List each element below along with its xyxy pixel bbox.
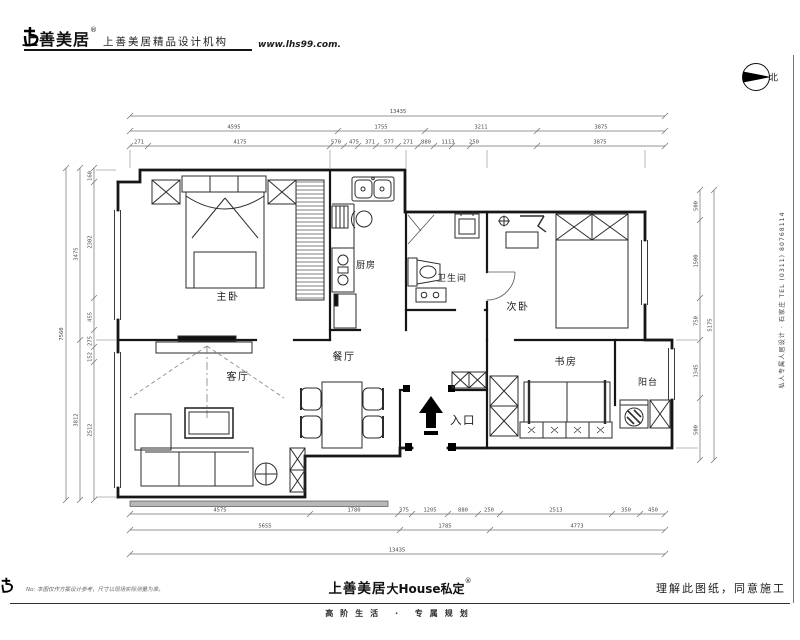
entry-arrow-icon: [419, 396, 443, 428]
footer-note: No: 本图仅作方案设计参考，尺寸以现场实际测量为准。: [26, 585, 164, 593]
room-label-bath: 卫生间: [437, 272, 467, 284]
room-label-dining: 餐厅: [333, 350, 356, 363]
dim-left: [63, 165, 116, 503]
svg-text:13435: 13435: [389, 548, 406, 554]
svg-text:3875: 3875: [594, 125, 607, 131]
room-label-kitchen: 厨房: [356, 259, 376, 271]
svg-text:3475: 3475: [74, 247, 80, 260]
svg-text:250: 250: [469, 140, 479, 146]
svg-text:5175: 5175: [708, 318, 714, 331]
svg-text:4773: 4773: [570, 524, 583, 530]
svg-text:880: 880: [421, 140, 431, 146]
balcony-fixtures: [620, 400, 670, 428]
titleblock-rules: [10, 55, 794, 604]
svg-text:4595: 4595: [227, 125, 240, 131]
svg-text:455: 455: [88, 312, 94, 322]
footer-tagline: 高阶生活 · 专属规划: [0, 608, 800, 619]
svg-text:3875: 3875: [593, 140, 606, 146]
svg-text:271: 271: [403, 140, 413, 146]
svg-text:500: 500: [694, 201, 700, 211]
svg-text:5655: 5655: [258, 524, 271, 530]
dim-bottom-labels: 4575 1780 375 1205 880 250 2513 350 450 …: [213, 508, 658, 554]
dim-top-labels: 13435 4595 1755 3211 3875 271 4175 570 4…: [134, 109, 608, 146]
north-compass-icon: 北: [743, 64, 779, 91]
svg-text:160: 160: [88, 171, 94, 181]
svg-text:1205: 1205: [423, 508, 436, 514]
header: 上善美居® 上善美居精品设计机构: [22, 26, 228, 50]
kitchen-fixtures: [332, 177, 394, 328]
floorplan-canvas: 北 13435 4595 1755 3211 3875 271 4175 570…: [0, 0, 800, 640]
svg-text:1780: 1780: [347, 508, 360, 514]
svg-text:1755: 1755: [374, 125, 387, 131]
svg-text:2512: 2512: [88, 423, 94, 436]
bathroom-fixtures: [408, 211, 479, 302]
header-rule: [24, 49, 252, 51]
website-url: www.lhs99.com.: [258, 40, 341, 50]
door-swings: [408, 215, 515, 300]
svg-text:577: 577: [384, 140, 394, 146]
svg-text:271: 271: [134, 140, 144, 146]
study-furniture: [490, 376, 612, 438]
svg-text:880: 880: [458, 508, 468, 514]
svg-text:275: 275: [88, 336, 94, 346]
room-label-living: 客厅: [227, 370, 250, 383]
footer-logo-icon: [0, 577, 15, 594]
svg-text:2513: 2513: [549, 508, 562, 514]
footer-reg-mark: ®: [465, 577, 472, 585]
agency-name: 上善美居精品设计机构: [103, 34, 228, 50]
svg-text:450: 450: [648, 508, 658, 514]
svg-text:475: 475: [349, 140, 359, 146]
svg-text:3812: 3812: [74, 413, 80, 426]
svg-text:570: 570: [331, 140, 341, 146]
footer-brand-name: 上善美居: [328, 581, 386, 597]
svg-text:250: 250: [484, 508, 494, 514]
svg-text:2302: 2302: [88, 235, 94, 248]
svg-text:750: 750: [694, 316, 700, 326]
dim-top: [127, 113, 668, 168]
master-bedroom-furniture: [152, 176, 324, 300]
svg-text:1785: 1785: [438, 524, 451, 530]
svg-text:4575: 4575: [213, 508, 226, 514]
room-label-second: 次卧: [507, 300, 530, 313]
svg-text:7560: 7560: [59, 327, 65, 340]
svg-text:375: 375: [399, 508, 409, 514]
footer-brand-suffix: 大House私定: [386, 582, 464, 596]
room-label-study: 书房: [555, 355, 578, 368]
svg-text:3211: 3211: [474, 125, 487, 131]
svg-text:1113: 1113: [441, 140, 454, 146]
dining-furniture: [301, 382, 383, 448]
dim-right-labels: 500 1500 750 1345 500 5175: [694, 201, 714, 435]
svg-text:152: 152: [88, 352, 94, 362]
dim-left-labels: 7560 3475 3812 160 2302 455 275 152 2512: [59, 171, 94, 437]
svg-text:350: 350: [621, 508, 631, 514]
room-label-balcony: 阳台: [638, 376, 658, 388]
svg-text:4175: 4175: [233, 140, 246, 146]
north-label: 北: [769, 73, 778, 84]
room-label-entry: 入口: [450, 413, 476, 427]
svg-text:371: 371: [365, 140, 375, 146]
approval-text: 理解此图纸，同意施工: [656, 580, 786, 596]
brand-reg-mark: ®: [90, 26, 97, 34]
living-room-furniture: [130, 336, 305, 492]
svg-text:1345: 1345: [694, 364, 700, 377]
svg-text:500: 500: [694, 425, 700, 435]
svg-text:1500: 1500: [694, 254, 700, 267]
room-label-master: 主卧: [217, 290, 240, 303]
svg-text:13435: 13435: [390, 109, 407, 115]
brand-logo-icon: [22, 26, 41, 48]
project-side-text: 私人专属人居设计 · 石家庄 TEL (0311) 80768114: [778, 211, 786, 388]
